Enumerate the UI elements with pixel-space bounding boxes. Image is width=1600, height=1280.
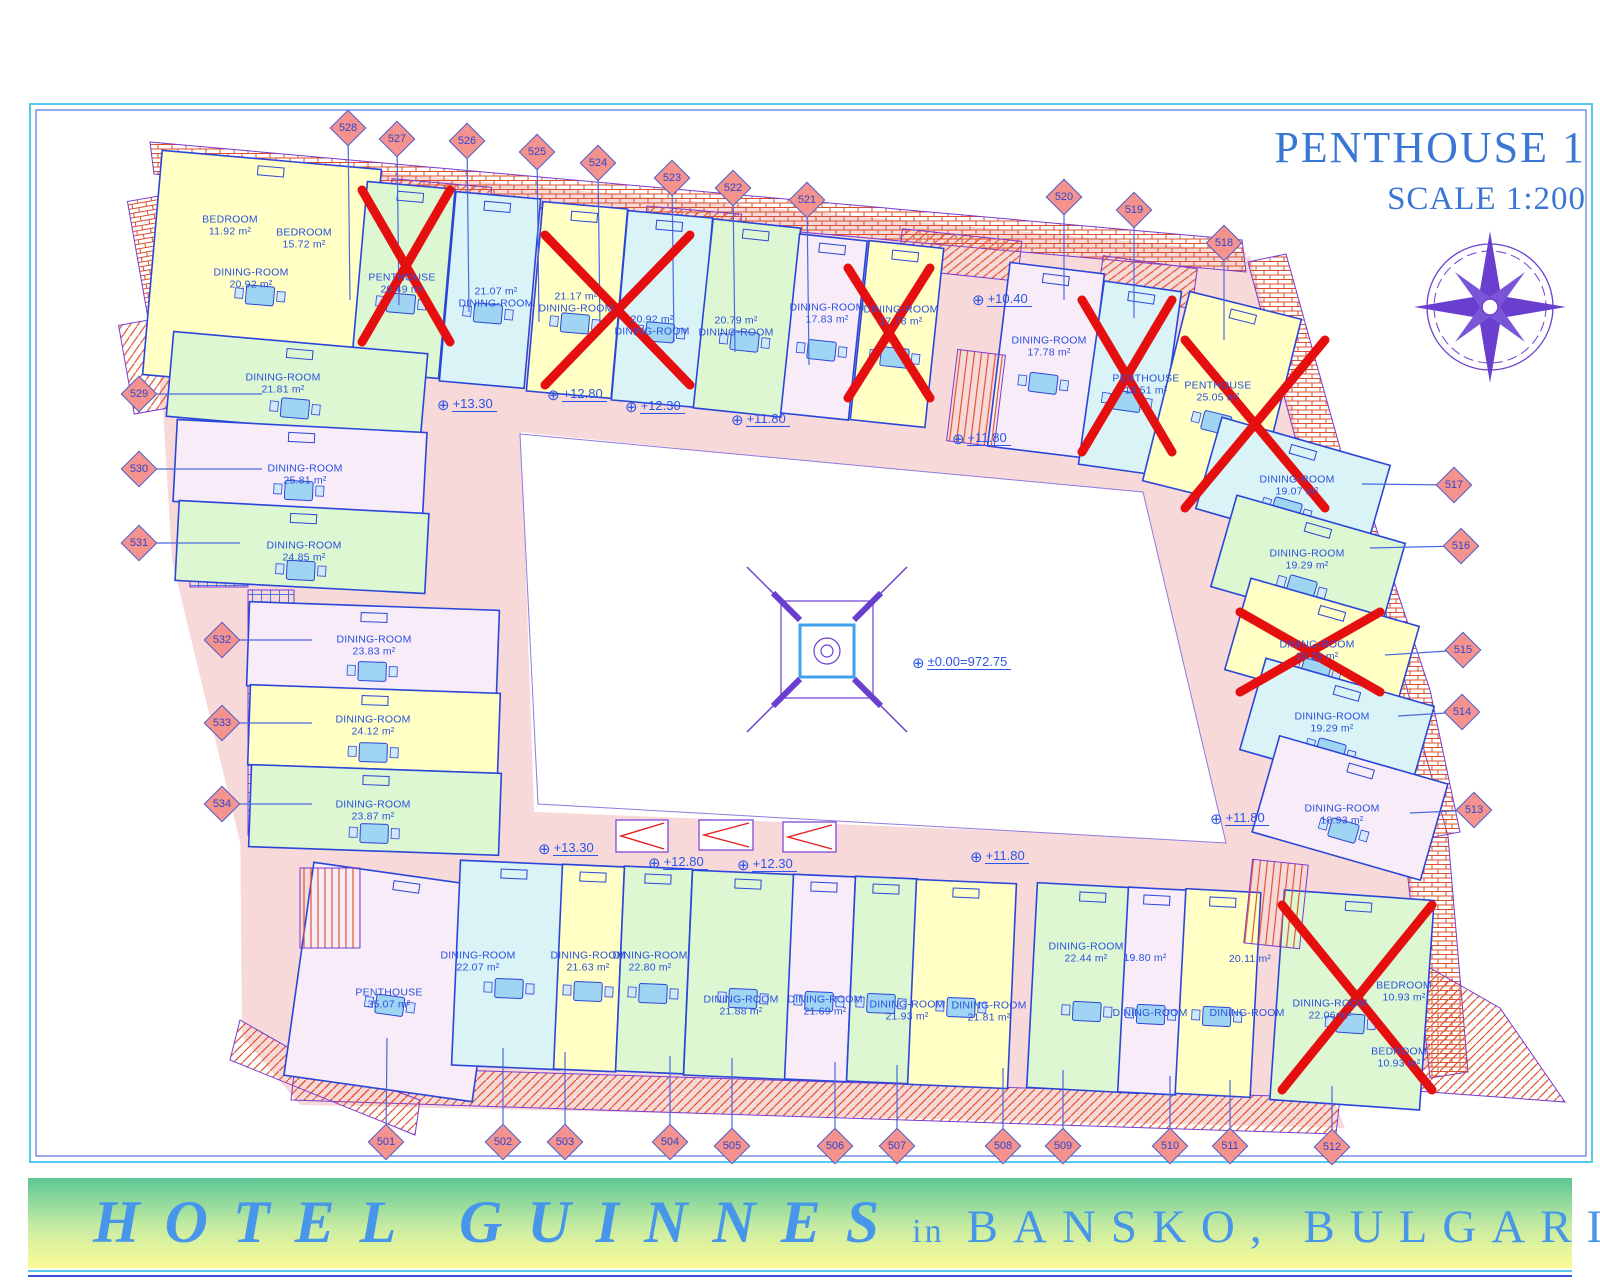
axis-marker-521: 521: [791, 184, 823, 216]
axis-marker-520: 520: [1048, 181, 1080, 213]
unit-yellow: [908, 879, 1017, 1088]
elevation-value: +11.80: [746, 411, 790, 427]
axis-marker-number: 534: [206, 788, 238, 820]
unit-yellow: [248, 685, 501, 774]
axis-marker-508: 508: [987, 1130, 1019, 1162]
axis-marker-534: 534: [206, 788, 238, 820]
elevation-symbol-icon: ⊕: [547, 389, 560, 402]
banner-conjunction: in: [912, 1213, 944, 1251]
axis-marker-number: 520: [1048, 181, 1080, 213]
title-block: PENTHOUSE 1 SCALE 1:200: [1274, 122, 1586, 218]
elevation-symbol-icon: ⊕: [952, 433, 965, 446]
axis-marker-526: 526: [451, 125, 483, 157]
axis-marker-506: 506: [819, 1130, 851, 1162]
axis-marker-504: 504: [654, 1126, 686, 1158]
axis-marker-number: 514: [1446, 696, 1478, 728]
axis-marker-number: 503: [549, 1126, 581, 1158]
axis-marker-509: 509: [1047, 1130, 1079, 1162]
axis-marker-number: 522: [717, 172, 749, 204]
unit-lavender: [785, 874, 856, 1082]
axis-marker-number: 521: [791, 184, 823, 216]
elevation-marker: ⊕+12.30: [737, 856, 797, 872]
unit-cyan: [439, 192, 540, 389]
elevation-marker: ⊕+11.80: [731, 411, 790, 427]
axis-marker-507: 507: [881, 1130, 913, 1162]
axis-marker-number: 511: [1214, 1130, 1246, 1162]
axis-marker-518: 518: [1208, 227, 1240, 259]
axis-marker-number: 525: [521, 136, 553, 168]
axis-marker-number: 513: [1458, 794, 1490, 826]
axis-marker-513: 513: [1458, 794, 1490, 826]
axis-marker-number: 512: [1316, 1131, 1348, 1163]
elevation-marker: ⊕+11.80: [970, 848, 1029, 864]
elevation-value: +11.80: [985, 848, 1029, 864]
axis-marker-number: 524: [582, 147, 614, 179]
axis-marker-number: 508: [987, 1130, 1019, 1162]
unit-cyan: [452, 860, 569, 1070]
unit-green: [847, 876, 918, 1084]
axis-marker-number: 533: [206, 707, 238, 739]
axis-marker-number: 515: [1447, 634, 1479, 666]
axis-marker-number: 528: [332, 112, 364, 144]
hotel-banner: HOTEL GUINNES in BANSKO, BULGARIA: [28, 1178, 1572, 1268]
elevation-marker: ⊕+13.30: [538, 840, 598, 856]
elevation-value: ±0.00=972.75: [927, 654, 1012, 670]
elevation-marker: ⊕+12.30: [625, 398, 685, 414]
axis-marker-number: 509: [1047, 1130, 1079, 1162]
unit-lavender: [173, 420, 427, 515]
elevation-marker: ⊕+13.30: [437, 396, 497, 412]
floor-plan-sheet: PENTHOUSE 1 SCALE 1:200 5285275265255245…: [0, 0, 1600, 1280]
elevation-symbol-icon: ⊕: [437, 399, 450, 412]
elevation-value: +13.30: [553, 840, 598, 856]
axis-marker-524: 524: [582, 147, 614, 179]
elevation-value: +13.30: [452, 396, 497, 412]
elevation-symbol-icon: ⊕: [648, 857, 661, 870]
axis-marker-522: 522: [717, 172, 749, 204]
elevation-symbol-icon: ⊕: [538, 843, 551, 856]
axis-marker-number: 529: [123, 378, 155, 410]
unit-yellow: [554, 864, 625, 1072]
axis-marker-501: 501: [370, 1126, 402, 1158]
axis-marker-number: 516: [1445, 530, 1477, 562]
axis-marker-number: 510: [1154, 1130, 1186, 1162]
banner-rule-cyan: [28, 1270, 1572, 1272]
unit-green: [249, 765, 502, 856]
axis-marker-529: 529: [123, 378, 155, 410]
sheet-scale: SCALE 1:200: [1274, 181, 1586, 218]
unit-lavender: [247, 602, 500, 695]
axis-marker-number: 527: [381, 123, 413, 155]
elevation-marker: ⊕±0.00=972.75: [912, 654, 1011, 670]
elevation-marker: ⊕+11.80: [952, 430, 1011, 446]
axis-marker-number: 532: [206, 624, 238, 656]
axis-marker-533: 533: [206, 707, 238, 739]
axis-marker-525: 525: [521, 136, 553, 168]
axis-marker-503: 503: [549, 1126, 581, 1158]
axis-marker-528: 528: [332, 112, 364, 144]
axis-marker-512: 512: [1316, 1131, 1348, 1163]
elevation-value: +12.80: [562, 386, 607, 402]
axis-marker-number: 519: [1118, 194, 1150, 226]
elevation-value: +12.30: [752, 856, 797, 872]
axis-marker-number: 505: [716, 1130, 748, 1162]
axis-marker-502: 502: [487, 1126, 519, 1158]
axis-marker-number: 507: [881, 1130, 913, 1162]
axis-marker-number: 506: [819, 1130, 851, 1162]
banner-rule-blue: [28, 1275, 1572, 1277]
elevation-symbol-icon: ⊕: [970, 851, 983, 864]
axis-marker-number: 504: [654, 1126, 686, 1158]
axis-marker-505: 505: [716, 1130, 748, 1162]
axis-marker-527: 527: [381, 123, 413, 155]
elevation-value: +12.30: [640, 398, 685, 414]
axis-marker-532: 532: [206, 624, 238, 656]
elevation-value: +11.80: [967, 430, 1011, 446]
elevation-value: +12.80: [663, 854, 708, 870]
axis-marker-530: 530: [123, 453, 155, 485]
axis-marker-number: 501: [370, 1126, 402, 1158]
axis-marker-number: 502: [487, 1126, 519, 1158]
elevation-marker: ⊕+12.80: [648, 854, 708, 870]
axis-marker-515: 515: [1447, 634, 1479, 666]
elevation-value: +10.40: [987, 291, 1032, 307]
unit-green: [175, 501, 429, 594]
axis-marker-531: 531: [123, 527, 155, 559]
sheet-title: PENTHOUSE 1: [1274, 122, 1586, 173]
elevation-symbol-icon: ⊕: [1210, 813, 1223, 826]
axis-marker-514: 514: [1446, 696, 1478, 728]
axis-marker-517: 517: [1438, 469, 1470, 501]
hotel-location: BANSKO, BULGARIA: [967, 1200, 1600, 1254]
axis-marker-516: 516: [1445, 530, 1477, 562]
axis-marker-number: 526: [451, 125, 483, 157]
axis-marker-523: 523: [656, 162, 688, 194]
axis-marker-number: 517: [1438, 469, 1470, 501]
axis-marker-519: 519: [1118, 194, 1150, 226]
elevation-symbol-icon: ⊕: [737, 859, 750, 872]
unit-green: [616, 866, 693, 1074]
elevation-symbol-icon: ⊕: [731, 414, 744, 427]
axis-marker-number: 518: [1208, 227, 1240, 259]
axis-marker-number: 530: [123, 453, 155, 485]
compass-rose-icon: [1414, 231, 1566, 383]
elevation-marker: ⊕+10.40: [972, 291, 1032, 307]
axis-marker-number: 523: [656, 162, 688, 194]
elevation-marker: ⊕+11.80: [1210, 810, 1269, 826]
elevation-symbol-icon: ⊕: [912, 657, 925, 670]
corridor-vents: [616, 820, 836, 852]
axis-marker-510: 510: [1154, 1130, 1186, 1162]
elevation-marker: ⊕+12.80: [547, 386, 607, 402]
hotel-name: HOTEL GUINNES: [93, 1178, 904, 1266]
elevation-value: +11.80: [1225, 810, 1269, 826]
elevation-symbol-icon: ⊕: [625, 401, 638, 414]
axis-marker-511: 511: [1214, 1130, 1246, 1162]
elevation-symbol-icon: ⊕: [972, 294, 985, 307]
axis-marker-number: 531: [123, 527, 155, 559]
